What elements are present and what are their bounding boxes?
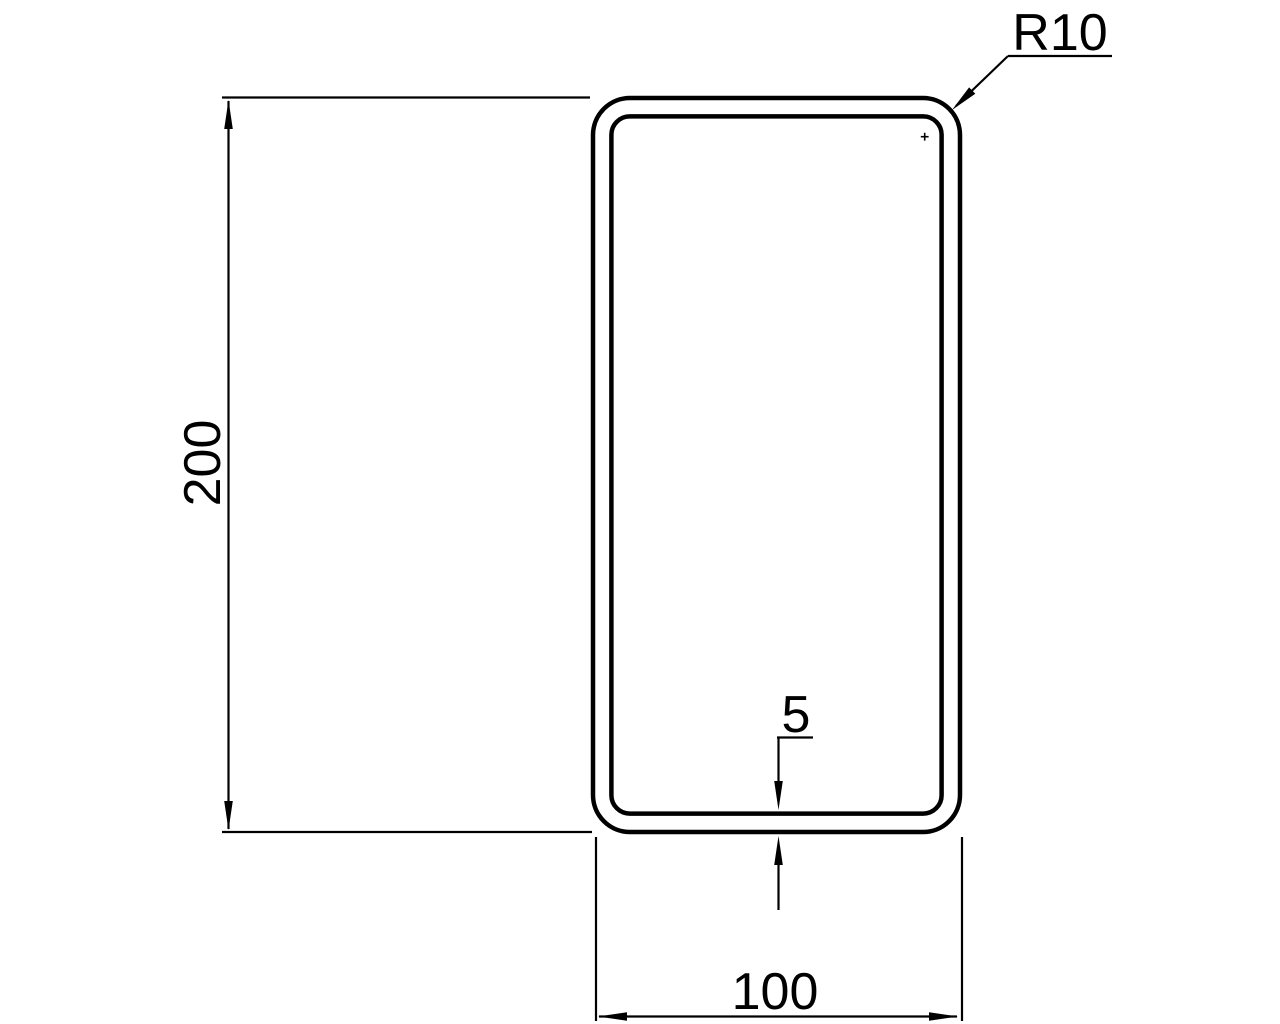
radius-callout: R10: [952, 4, 1112, 110]
arrowhead-left-icon: [598, 1012, 627, 1021]
arrowhead-down-icon: [774, 781, 783, 810]
arrowhead-up-icon: [224, 100, 233, 129]
thickness-dimension: 5: [774, 686, 813, 910]
thickness-dimension-label: 5: [782, 686, 811, 744]
radius-center-mark: [921, 133, 929, 141]
tube-profile: [593, 98, 960, 832]
technical-drawing-canvas: 200 100 5 R10: [0, 0, 1280, 1024]
height-dimension: 200: [174, 98, 592, 833]
width-dimension-label: 100: [732, 963, 819, 1021]
height-dimension-label: 200: [174, 420, 232, 507]
arrowhead-right-icon: [929, 1012, 958, 1021]
arrowhead-diagonal-icon: [952, 87, 975, 110]
inner-profile-rounded-rect: [611, 116, 941, 813]
drawing-sheet: 200 100 5 R10: [0, 0, 1280, 1024]
arrowhead-down-icon: [224, 801, 233, 830]
radius-dimension-label: R10: [1012, 4, 1107, 62]
outer-profile-rounded-rect: [593, 98, 960, 832]
